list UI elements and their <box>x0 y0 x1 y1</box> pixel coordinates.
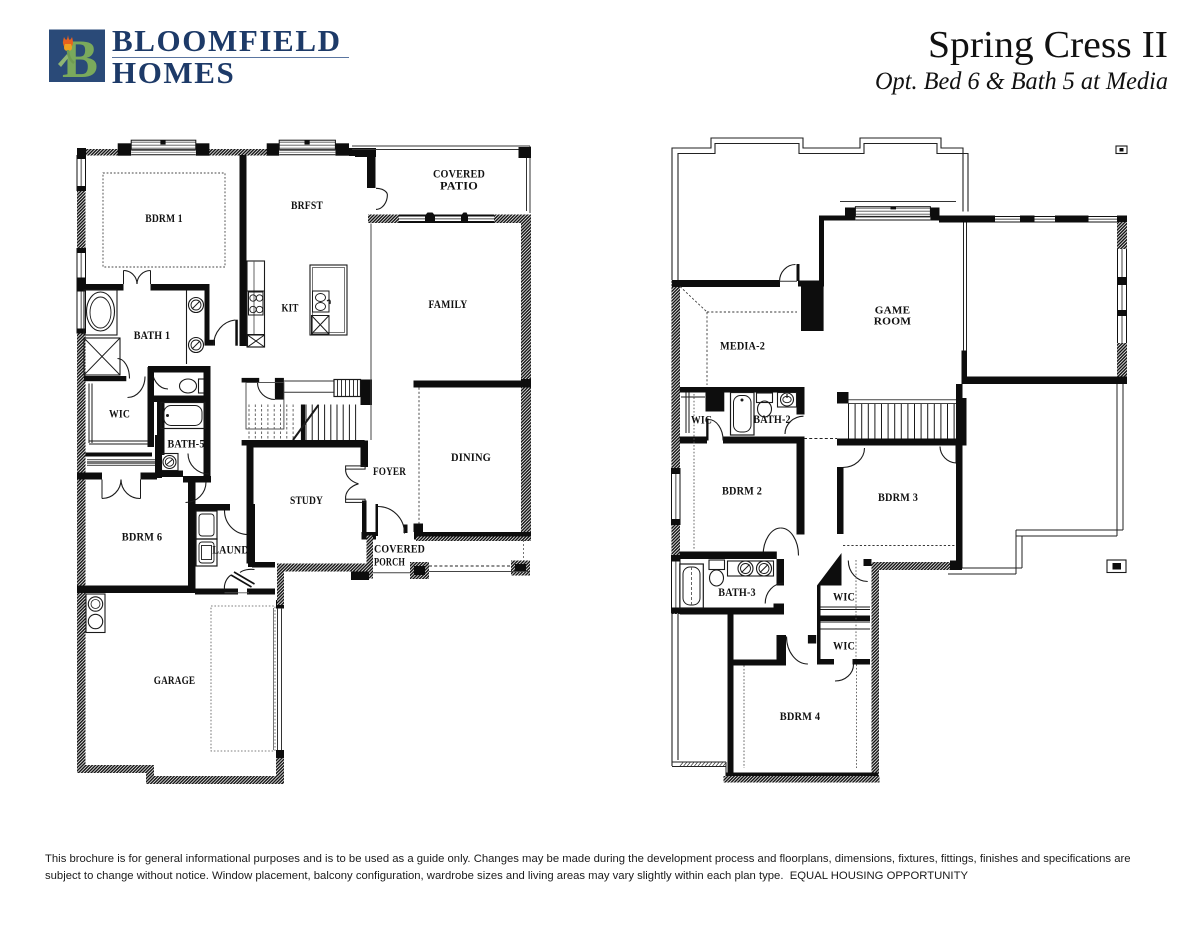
svg-text:PORCH: PORCH <box>374 555 405 569</box>
svg-text:BATH-2: BATH-2 <box>753 412 791 426</box>
svg-text:WIC: WIC <box>691 413 712 427</box>
svg-text:BDRM 4: BDRM 4 <box>780 709 821 723</box>
svg-text:BATH 1: BATH 1 <box>134 328 171 342</box>
svg-text:STUDY: STUDY <box>290 493 323 507</box>
svg-text:ROOM: ROOM <box>874 316 912 328</box>
svg-text:BLOOMFIELD: BLOOMFIELD <box>112 23 342 58</box>
svg-text:subject to change without noti: subject to change without notice. Window… <box>45 870 968 882</box>
svg-text:Spring Cress II: Spring Cress II <box>928 24 1168 66</box>
svg-text:BDRM 3: BDRM 3 <box>878 490 918 504</box>
svg-text:WIC: WIC <box>833 639 855 653</box>
svg-text:BATH-3: BATH-3 <box>718 585 756 599</box>
svg-text:WIC: WIC <box>109 407 130 421</box>
svg-text:Opt. Bed 6 & Bath 5 at Media: Opt. Bed 6 & Bath 5 at Media <box>875 66 1168 95</box>
svg-text:BATH-5: BATH-5 <box>168 437 205 451</box>
svg-text:BDRM 6: BDRM 6 <box>122 530 163 544</box>
svg-text:GARAGE: GARAGE <box>154 673 196 687</box>
svg-text:KIT: KIT <box>282 301 299 315</box>
svg-text:MEDIA-2: MEDIA-2 <box>720 339 765 353</box>
svg-text:LAUND: LAUND <box>212 543 249 557</box>
svg-text:PATIO: PATIO <box>440 179 478 193</box>
svg-text:HOMES: HOMES <box>112 55 235 90</box>
svg-text:DINING: DINING <box>451 450 491 464</box>
svg-text:WIC: WIC <box>833 590 855 604</box>
svg-text:This brochure is for general i: This brochure is for general information… <box>45 853 1131 865</box>
svg-text:BRFST: BRFST <box>291 198 323 212</box>
svg-text:FAMILY: FAMILY <box>429 297 468 311</box>
svg-text:COVERED: COVERED <box>374 542 425 556</box>
svg-text:FOYER: FOYER <box>373 464 406 478</box>
svg-text:BDRM 2: BDRM 2 <box>722 484 762 498</box>
svg-text:BDRM 1: BDRM 1 <box>145 211 183 225</box>
